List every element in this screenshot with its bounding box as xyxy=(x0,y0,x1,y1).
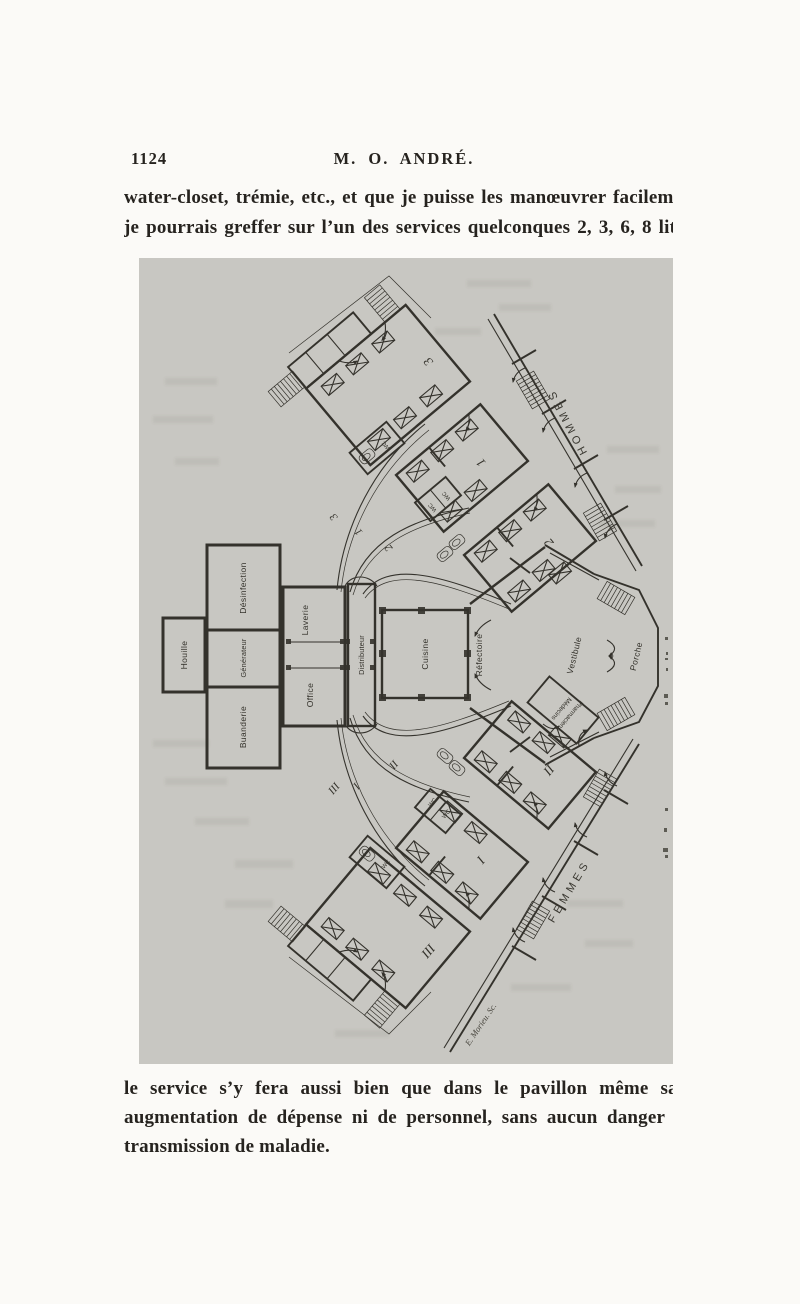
room-label-porche: Porche xyxy=(628,641,645,672)
bottom-paragraph-line-2: augmentation de dépense ni de personnel,… xyxy=(124,1103,673,1132)
ward-number-men-1: 1 xyxy=(473,456,489,471)
corridor-number-women-III: III xyxy=(325,780,343,798)
room-label-distributeur: Distributeur xyxy=(357,635,366,675)
room-label-houille: Houille xyxy=(179,641,189,670)
room-label-laverie: Laverie xyxy=(300,605,310,636)
bottom-paragraph: le service s’y fera aussi bien que dans … xyxy=(124,1074,673,1161)
hospital-plan-figure: Houille Désinfection Générateur Buanderi… xyxy=(139,258,673,1064)
scanned-figure: Houille Désinfection Générateur Buanderi… xyxy=(139,258,673,1064)
room-label-refectoire: Réfectoire xyxy=(474,634,484,677)
women-ward-III: III xyxy=(262,828,470,1033)
room-label-vestibule: Vestibule xyxy=(565,636,584,675)
room-label-buanderie: Buanderie xyxy=(238,706,248,748)
bottom-paragraph-line-1: le service s’y fera aussi bien que dans … xyxy=(124,1074,673,1103)
women-ward-I: I xyxy=(396,791,528,918)
cropped-caption-fragments xyxy=(663,637,668,858)
men-wc-pair: WC WC xyxy=(415,477,461,521)
bottom-paragraph-line-3: transmission de maladie. xyxy=(124,1132,673,1161)
top-paragraph-line-1: water-closet, trémie, etc., et que je pu… xyxy=(124,183,673,213)
service-room-labels: Houille Désinfection Générateur Buanderi… xyxy=(179,562,644,748)
wc-label-men-1: WC xyxy=(428,501,439,512)
wc-label-men-annex: WC xyxy=(381,440,392,451)
women-ward-II: II xyxy=(464,701,596,828)
wc-label-men-2: WC xyxy=(441,490,452,501)
wc-label-women-annex: WC xyxy=(381,859,392,870)
ward-number-men-3: 3 xyxy=(420,354,437,370)
room-label-office: Office xyxy=(305,683,315,707)
room-label-cuisine: Cuisine xyxy=(420,638,430,669)
room-label-desinfection: Désinfection xyxy=(238,562,248,614)
men-ward-3: 3 xyxy=(262,280,470,485)
page-bleedthrough-texture xyxy=(153,280,661,1037)
corridor-number-women-II: II xyxy=(386,758,401,773)
corridor-number-men-3: 3 xyxy=(327,510,341,523)
top-paragraph-line-2: je pourrais greffer sur l’un des service… xyxy=(124,213,673,243)
ward-number-women-I: I xyxy=(473,853,488,867)
women-gallery xyxy=(289,739,639,1052)
door-arrows xyxy=(513,368,617,942)
room-label-generateur: Générateur xyxy=(239,638,248,677)
corridor-number-men-1: 1 xyxy=(353,526,366,538)
running-head: M. O. ANDRÉ. xyxy=(124,149,684,169)
men-wc-annex: WC xyxy=(350,422,405,474)
wing-label-hommes: HOMMES xyxy=(545,386,590,457)
women-wc-pair: WC WC xyxy=(415,789,461,833)
men-ward-1: 1 xyxy=(396,404,528,531)
ward-number-women-III: III xyxy=(417,941,438,962)
top-paragraph: water-closet, trémie, etc., et que je pu… xyxy=(124,183,673,243)
